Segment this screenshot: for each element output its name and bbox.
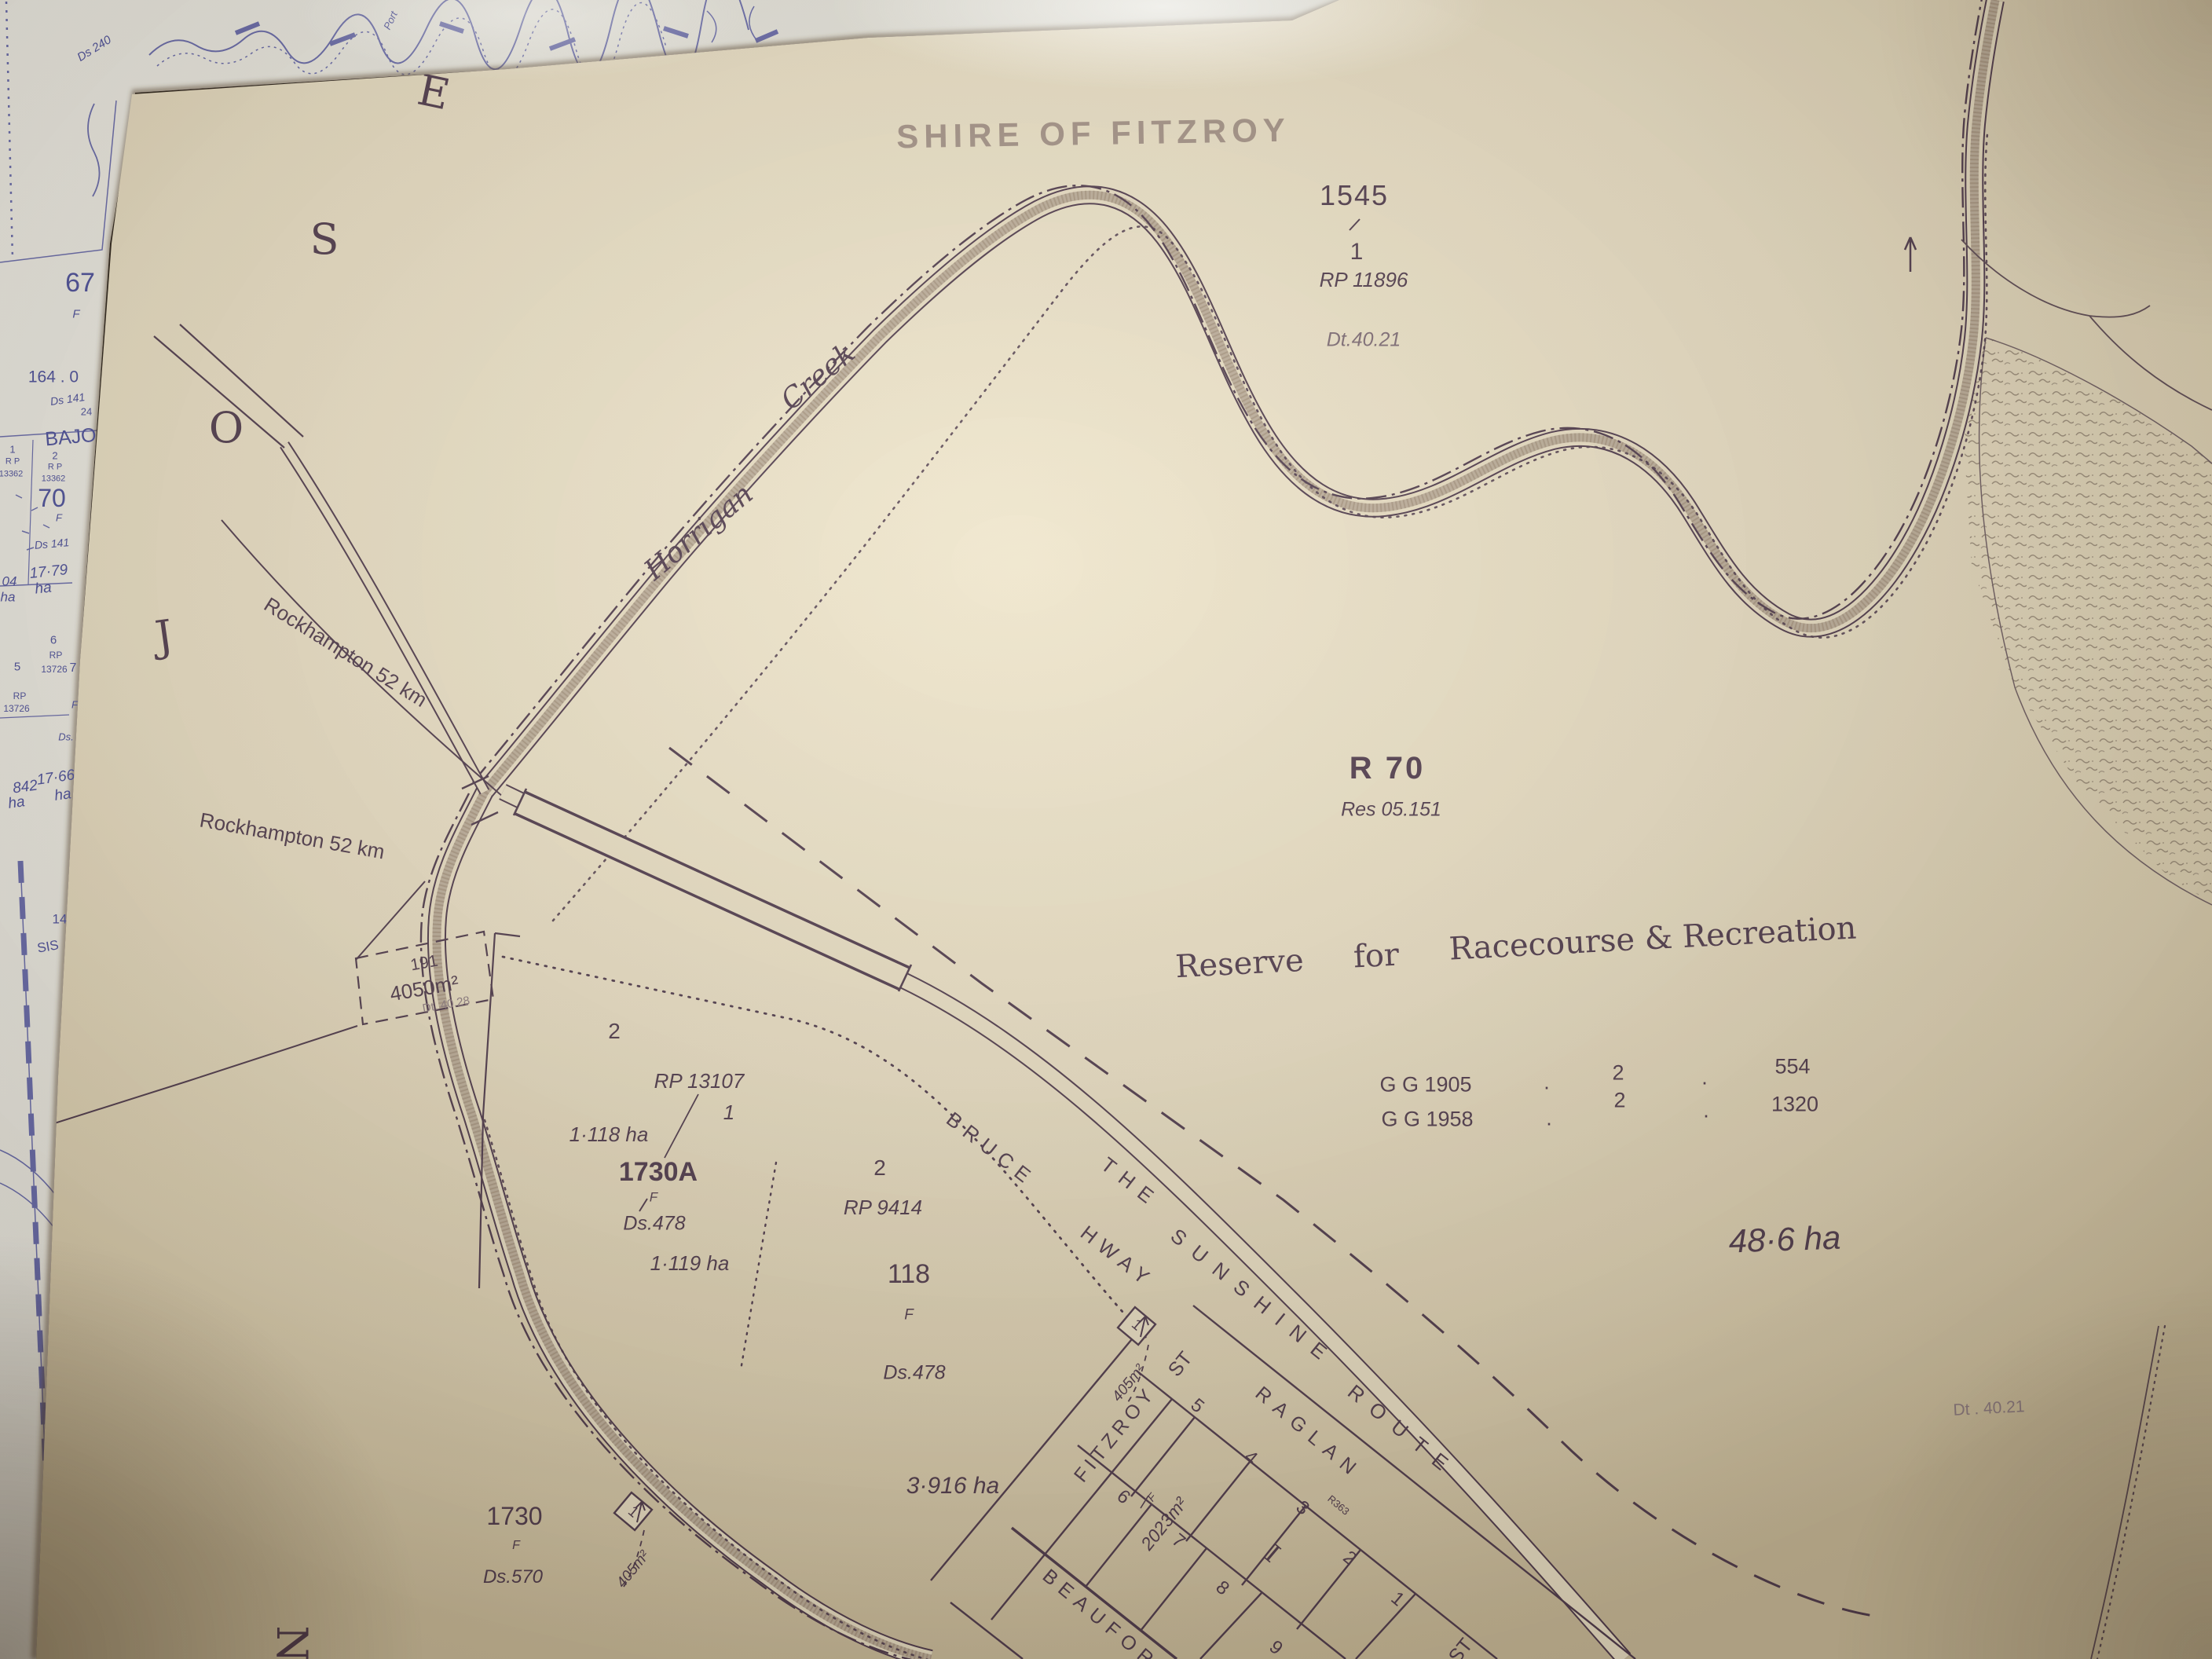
under-area: ha bbox=[7, 794, 26, 811]
parish-letter: O bbox=[209, 407, 244, 449]
photographed-map: Ds 24067F164 . 0Ds 14124BAJO1R P133622R … bbox=[0, 0, 2212, 1659]
diagram-ref: Dt.40.21 bbox=[1327, 331, 1401, 350]
parish-letter: S bbox=[310, 218, 339, 261]
area-value: 48·6 ha bbox=[1728, 1221, 1841, 1258]
reserve-title-word: Reserve bbox=[1174, 945, 1304, 983]
creek-name: Horrigan bbox=[640, 480, 759, 586]
town-lot: 2 bbox=[1339, 1548, 1360, 1569]
gazette-col: 2 bbox=[1612, 1063, 1624, 1084]
town-lot: 1 bbox=[1387, 1589, 1408, 1610]
freehold-mark: F bbox=[1145, 1491, 1158, 1503]
under-name: Port bbox=[382, 9, 399, 31]
under-area: ha bbox=[53, 786, 72, 804]
under-deed-ref: Ds. bbox=[58, 732, 74, 742]
under-parcel: 70 bbox=[38, 485, 66, 511]
area-value: 2023m² bbox=[1138, 1494, 1191, 1553]
under-area: ha bbox=[34, 580, 52, 596]
under-plan: 13726 bbox=[3, 704, 29, 713]
survey-mark: I bbox=[1261, 1541, 1284, 1567]
creek-name: Creek bbox=[777, 339, 861, 416]
lot-number: 1 bbox=[723, 1102, 734, 1122]
lot-number: 2 bbox=[608, 1020, 621, 1042]
reserve-title-word: Racecourse & Recreation bbox=[1448, 912, 1857, 965]
main-map-sheet: SHIRE OF FITZROY15451RP 11896Dt.40.21R 7… bbox=[0, 0, 2212, 1659]
street-name: BEAUFORT bbox=[1038, 1566, 1176, 1659]
under-deed-ref: Ds 141 bbox=[49, 391, 86, 407]
deed-ref: Ds.478 bbox=[883, 1364, 945, 1383]
area-value: 1·119 ha bbox=[650, 1253, 730, 1273]
parish-letter: N bbox=[270, 1625, 313, 1659]
gazette-dot: . bbox=[1701, 1068, 1708, 1089]
parcel-number: 191 bbox=[409, 953, 439, 974]
plan-ref: RP 13107 bbox=[654, 1071, 745, 1091]
under-parcel: 67 bbox=[65, 269, 95, 296]
plan-ref-small: R363 bbox=[1326, 1493, 1351, 1517]
route-name: SUNSHINE bbox=[1167, 1225, 1340, 1370]
deed-ref: Ds.478 bbox=[623, 1214, 685, 1234]
gazette-col: 554 bbox=[1774, 1057, 1810, 1078]
town-lot: 9 bbox=[1265, 1638, 1286, 1659]
route-name: THE bbox=[1097, 1154, 1164, 1213]
parcel-number: 1730 bbox=[486, 1503, 542, 1529]
under-number: 164 . 0 bbox=[28, 369, 79, 386]
under-plan: RP bbox=[49, 650, 63, 660]
under-area: 04 bbox=[2, 575, 17, 588]
reserve-title-word: for bbox=[1353, 939, 1400, 973]
gazette-dot: . bbox=[1546, 1108, 1552, 1130]
area-value: 405m² bbox=[614, 1548, 653, 1591]
under-freehold: F bbox=[71, 700, 78, 710]
under-plan: R P bbox=[48, 463, 62, 472]
under-area: 17·79 bbox=[29, 562, 68, 581]
reserve-number: R 70 bbox=[1350, 753, 1426, 784]
under-freehold: F bbox=[72, 309, 79, 320]
street-suffix: ST bbox=[1165, 1349, 1196, 1381]
deed-ref: Ds.570 bbox=[483, 1568, 543, 1587]
diagram-ref: Dt . 40.21 bbox=[1953, 1398, 2025, 1419]
parcel-number: 118 bbox=[888, 1261, 930, 1287]
under-parcel: 7 bbox=[70, 662, 77, 675]
town-lot: 5 bbox=[1187, 1396, 1207, 1417]
gazette-col: 1320 bbox=[1771, 1094, 1818, 1115]
town-lot: 8 bbox=[1212, 1578, 1232, 1599]
area-value: 3·916 ha bbox=[906, 1474, 999, 1498]
lot-number: 1 bbox=[1350, 240, 1364, 264]
lot-number: 2 bbox=[873, 1157, 886, 1179]
under-plan: 13362 bbox=[0, 471, 23, 479]
town-lot: 3 bbox=[1292, 1498, 1313, 1519]
freehold-mark: F bbox=[650, 1191, 657, 1204]
map-labels-layer: SHIRE OF FITZROY15451RP 11896Dt.40.21R 7… bbox=[0, 0, 2212, 1659]
road-destination: Rockhampton 52 km bbox=[261, 594, 430, 710]
under-area: 842 bbox=[12, 778, 38, 796]
gazette-dot: . bbox=[1544, 1072, 1550, 1093]
reserve-ref: Res 05.151 bbox=[1341, 800, 1441, 820]
under-number: 14 bbox=[53, 913, 68, 926]
plan-ref: RP 11896 bbox=[1320, 269, 1408, 290]
gazette-entry: G G 1905 bbox=[1379, 1075, 1471, 1096]
town-lot: 7 bbox=[1168, 1531, 1188, 1552]
gazette-dot: . bbox=[1703, 1101, 1709, 1122]
freehold-mark: F bbox=[904, 1308, 914, 1323]
road-destination: Rockhampton 52 km bbox=[198, 809, 386, 862]
parcel-number: 1730A bbox=[619, 1159, 698, 1185]
under-lot: 6 bbox=[50, 635, 57, 646]
town-lot: 4 bbox=[1240, 1448, 1261, 1469]
street-suffix: ST bbox=[1445, 1635, 1477, 1659]
plan-ref: RP 9414 bbox=[844, 1197, 922, 1218]
gazette-col: 2 bbox=[1613, 1090, 1625, 1111]
parcel-number: 1545 bbox=[1320, 181, 1389, 210]
under-number: 24 bbox=[81, 407, 92, 417]
under-area: 17·66 bbox=[36, 767, 76, 788]
under-plan: 13362 bbox=[42, 475, 66, 484]
under-deed-ref: Ds 141 bbox=[34, 537, 69, 551]
parish-letter: J bbox=[153, 614, 176, 658]
town-lot: 6 bbox=[1113, 1487, 1133, 1508]
under-lot: 2 bbox=[52, 451, 57, 461]
gazette-entry: G G 1958 bbox=[1381, 1109, 1473, 1130]
map-title: SHIRE OF FITZROY bbox=[896, 114, 1291, 154]
reference-square-number: 1 bbox=[625, 1503, 641, 1520]
under-plan: R P bbox=[5, 458, 20, 467]
under-plan: RP bbox=[13, 691, 27, 701]
under-freehold: F bbox=[56, 513, 62, 523]
under-lot: 5 bbox=[14, 661, 20, 673]
freehold-mark: F bbox=[512, 1540, 520, 1552]
area-value: 1·118 ha bbox=[569, 1124, 649, 1144]
under-lot: 1 bbox=[9, 445, 15, 455]
highway-name: HWAY bbox=[1077, 1222, 1159, 1292]
under-name: SIS bbox=[36, 938, 60, 955]
highway-name: BRUCE bbox=[943, 1108, 1039, 1190]
under-plan: 13726 bbox=[41, 665, 67, 674]
under-deed-ref: Ds 240 bbox=[75, 34, 113, 64]
reference-square-number: 1 bbox=[1129, 1317, 1144, 1333]
under-area: ha bbox=[1, 591, 16, 604]
parish-letter: E bbox=[414, 68, 453, 116]
under-parish: BAJO bbox=[44, 426, 97, 450]
